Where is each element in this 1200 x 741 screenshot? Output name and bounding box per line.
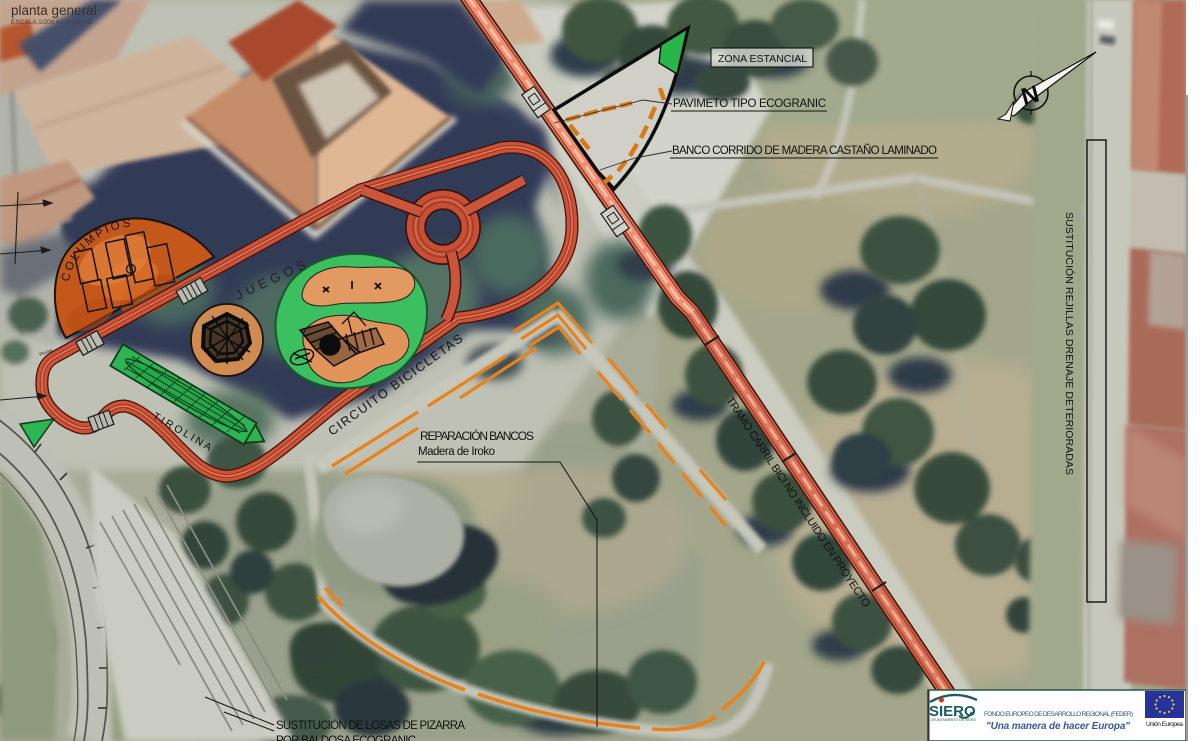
svg-text:POR BALDOSA ECOGRANIC: POR BALDOSA ECOGRANIC (276, 735, 416, 741)
svg-text:ESCALA 1/200 A1 1/400 A3: ESCALA 1/200 A1 1/400 A3 (11, 19, 92, 26)
svg-text:"Una manera de hacer Europa": "Una manera de hacer Europa" (986, 721, 1130, 732)
svg-text:FONDO EUROPEO DE DESARROLLO RE: FONDO EUROPEO DE DESARROLLO REGIONAL (FE… (984, 711, 1133, 718)
svg-text:AYUNTAMIENTO DE SIERO: AYUNTAMIENTO DE SIERO (931, 718, 976, 722)
svg-text:SUSTITUCIÓN DE LOSAS DE PIZARR: SUSTITUCIÓN DE LOSAS DE PIZARRA (276, 719, 465, 732)
svg-text:Unión Europea: Unión Europea (1146, 721, 1183, 728)
svg-text:SUSTITUCIÓN REJILLAS DRENAJE D: SUSTITUCIÓN REJILLAS DRENAJE DETERIORADA… (1063, 212, 1076, 475)
svg-text:ZONA ESTANCIAL: ZONA ESTANCIAL (718, 53, 807, 65)
svg-text:REPARACIÓN BANCOS: REPARACIÓN BANCOS (420, 428, 534, 443)
svg-text:BANCO CORRIDO DE MADERA CASTAÑ: BANCO CORRIDO DE MADERA CASTAÑO LAMINADO (672, 144, 937, 157)
svg-text:Madera de Iroko: Madera de Iroko (418, 446, 495, 458)
svg-text:planta general: planta general (11, 3, 97, 18)
svg-text:PAVIMETO TIPO ECOGRANIC: PAVIMETO TIPO ECOGRANIC (673, 98, 826, 110)
